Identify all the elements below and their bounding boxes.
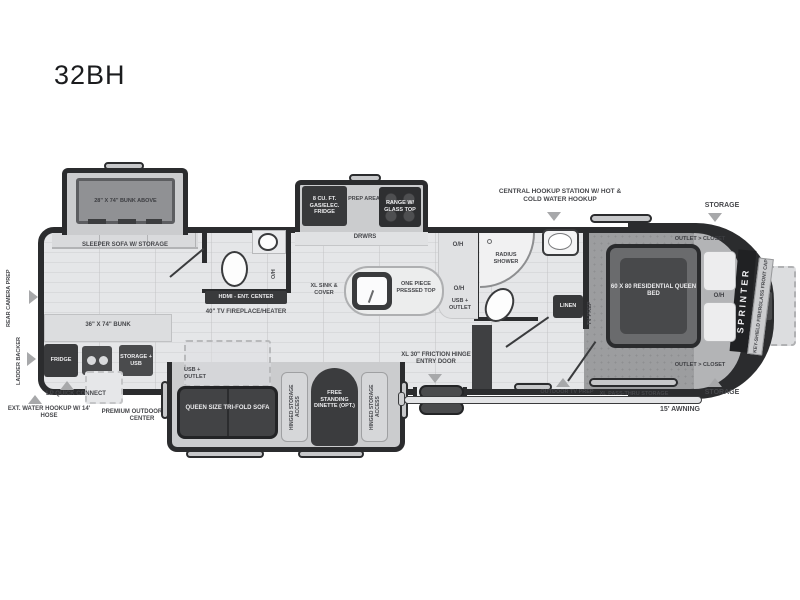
front-closet-door bbox=[703, 302, 736, 342]
radius-shower-label: RADIUS SHOWER bbox=[483, 252, 529, 265]
entry-door-label: XL 30" FRICTION HINGE ENTRY DOOR bbox=[400, 352, 472, 366]
outdoor-conv-center-door bbox=[85, 371, 123, 404]
hinged-storage-label: HINGED STORAGE ACCESS bbox=[369, 374, 381, 440]
range: RANGE W/ GLASS TOP bbox=[379, 187, 421, 227]
tri-fold-sofa-label: QUEEN SIZE TRI-FOLD SOFA bbox=[179, 405, 276, 412]
linen-label: LINEN bbox=[560, 303, 577, 310]
entry-wall-column bbox=[472, 325, 492, 389]
kitchen-fridge: 8 CU. FT. GAS/ELEC. FRIDGE bbox=[302, 186, 347, 226]
hinged-storage-label: HINGED STORAGE ACCESS bbox=[289, 374, 301, 440]
rv-floorplan-page: 32BH SPRINTER KEY-SHIELD FIBERGLASS FRON… bbox=[0, 0, 800, 600]
lp-quick-arrow bbox=[60, 381, 74, 390]
prep-area-label: PREP AREA bbox=[348, 196, 380, 203]
rear-bath-sink bbox=[258, 233, 278, 251]
sofa-cushion-divider bbox=[227, 389, 229, 436]
plan-title: 32BH bbox=[54, 60, 126, 91]
entertainment-center: HDMI - ENT. CENTER bbox=[205, 291, 287, 304]
sprinter-logo-text: SPRINTER bbox=[735, 268, 751, 334]
usb-outlet-label: USB + OUTLET bbox=[441, 298, 479, 311]
speaker-knob-icon bbox=[87, 356, 96, 365]
bedroom-slide-handle bbox=[590, 214, 652, 223]
bunk-hinge bbox=[118, 219, 136, 224]
tv-prep-label: TV PREP bbox=[587, 292, 598, 334]
oh-cabinet-label: O/H bbox=[440, 286, 478, 293]
bunk-hinge bbox=[88, 219, 106, 224]
kitchen-fridge-label: 8 CU. FT. GAS/ELEC. FRIDGE bbox=[304, 196, 346, 216]
lp-quick-label: LP QUICK CONNECT bbox=[40, 391, 112, 398]
outlet-closet-bottom-label: OUTLET > CLOSET bbox=[662, 362, 738, 369]
central-hookup-label: CENTRAL HOOKUP STATION W/ HOT & COLD WAT… bbox=[490, 188, 630, 204]
bunk-hinge bbox=[146, 219, 162, 224]
storage-top-arrow bbox=[708, 213, 722, 222]
storage-usb-cabinet: STORAGE + USB bbox=[119, 345, 153, 376]
sleeper-sofa-label: SLEEPER SOFA W/ STORAGE bbox=[58, 242, 192, 249]
hdmi-label: HDMI - ENT. CENTER bbox=[219, 294, 274, 301]
hinged-storage-left: HINGED STORAGE ACCESS bbox=[281, 372, 308, 442]
rear-camera-arrow bbox=[29, 290, 38, 304]
linen-closet: LINEN bbox=[553, 295, 583, 318]
tv-fireplace-label: 40" TV FIREPLACE/HEATER bbox=[205, 309, 287, 316]
rear-camera-label: REAR CAMERA PREP bbox=[6, 266, 28, 330]
front-closet-door bbox=[703, 251, 736, 291]
range-label: RANGE W/ GLASS TOP bbox=[380, 200, 420, 213]
outdoor-tv-arrow bbox=[556, 378, 570, 387]
xl-sink-label: XL SINK & COVER bbox=[304, 283, 344, 296]
bedroom-oh-label: O/H bbox=[700, 293, 738, 300]
bath-sink bbox=[548, 233, 572, 250]
speaker-knob-icon bbox=[99, 356, 108, 365]
bunk-above-label: 28" X 74" BUNK ABOVE bbox=[78, 198, 173, 205]
ext-water-arrow bbox=[28, 395, 42, 404]
pass-thru-label: XL PASS-THRU STORAGE bbox=[590, 391, 678, 398]
rear-fridge-label: FRIDGE bbox=[51, 357, 72, 364]
pass-thru-hatch-handle bbox=[589, 378, 678, 387]
awning-label: 15' AWNING bbox=[640, 406, 720, 414]
storage-bottom-label: STORAGE bbox=[698, 389, 746, 397]
central-hookup-arrow bbox=[547, 212, 561, 221]
rear-fridge: FRIDGE bbox=[44, 344, 78, 377]
entry-door-arrow bbox=[428, 374, 442, 383]
dinette-label: FREE STANDING DINETTE (OPT.) bbox=[313, 390, 356, 410]
lower-bunk-label: 36" X 74" BUNK bbox=[44, 322, 172, 329]
ext-water-label: EXT. WATER HOOKUP W/ 14' HOSE bbox=[4, 406, 94, 420]
drawers-label: DRWRS bbox=[345, 234, 385, 241]
ladder-backer-arrow bbox=[27, 352, 36, 366]
queen-bed-label: 60 X 80 RESIDENTIAL QUEEN BED bbox=[607, 284, 700, 298]
slide-bottom-handle bbox=[298, 450, 364, 458]
storage-bottom-arrow bbox=[708, 378, 722, 387]
rear-bath-oh-label: O/H bbox=[271, 260, 281, 288]
hinged-storage-right: HINGED STORAGE ACCESS bbox=[361, 372, 388, 442]
rear-bath-toilet bbox=[221, 251, 248, 287]
slide-bottom-handle bbox=[186, 450, 264, 458]
slide-side-handle bbox=[161, 381, 169, 419]
storage-usb-label: STORAGE + USB bbox=[119, 354, 153, 367]
outlet-closet-top-label: OUTLET > CLOSET bbox=[662, 236, 738, 243]
storage-top-label: STORAGE bbox=[698, 202, 746, 210]
slide-usb-outlet-label: USB + OUTLET bbox=[184, 367, 222, 380]
island-top-label: ONE PIECE PRESSED TOP bbox=[392, 281, 440, 294]
shower-head-icon bbox=[487, 239, 492, 244]
rear-bath-wall-right bbox=[286, 233, 291, 293]
oh-cabinet-label: O/H bbox=[438, 242, 478, 249]
